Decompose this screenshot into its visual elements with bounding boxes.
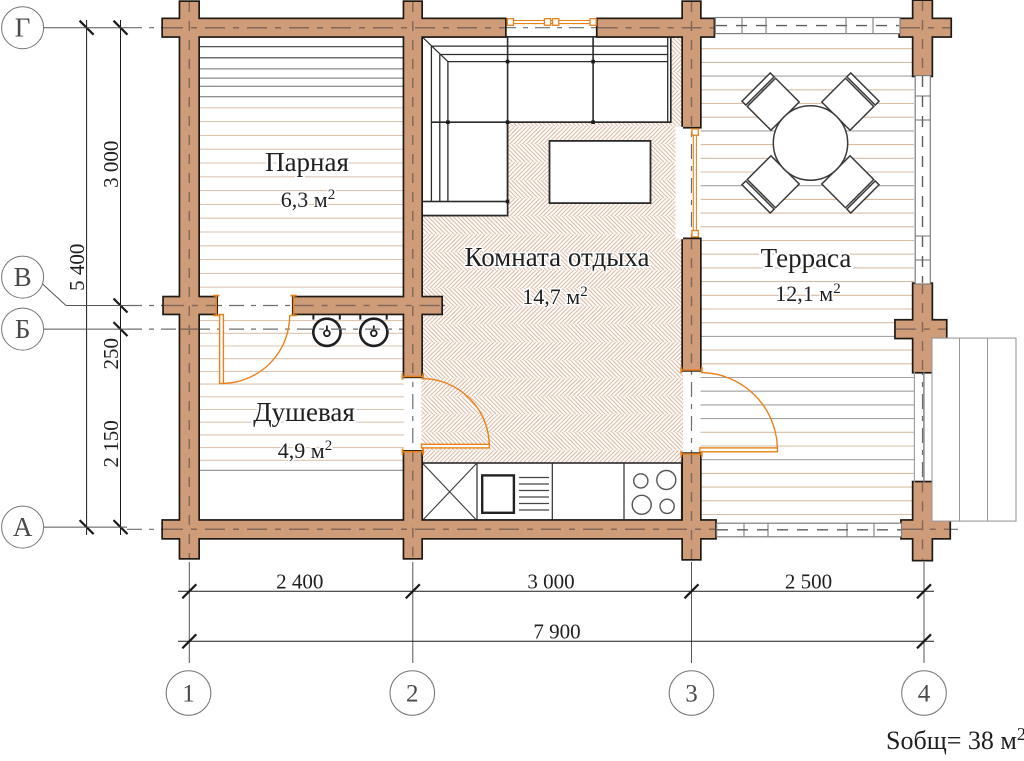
svg-text:Sобщ= 38 м2: Sобщ= 38 м2 [886, 724, 1024, 755]
svg-text:В: В [14, 262, 32, 292]
svg-text:12,1 м2: 12,1 м2 [775, 281, 840, 306]
svg-text:6,3 м2: 6,3 м2 [281, 187, 335, 212]
svg-text:250: 250 [99, 338, 123, 370]
svg-text:5 400: 5 400 [65, 244, 89, 291]
svg-text:2 400: 2 400 [276, 569, 323, 593]
svg-text:Парная: Парная [265, 147, 349, 177]
svg-text:4,9 м2: 4,9 м2 [278, 438, 332, 463]
svg-text:2 500: 2 500 [785, 569, 832, 593]
svg-text:3 000: 3 000 [99, 141, 123, 188]
svg-text:Терраса: Терраса [761, 243, 852, 273]
svg-text:А: А [13, 512, 33, 542]
svg-text:Комната отдыха: Комната отдыха [465, 242, 650, 272]
svg-text:2: 2 [406, 681, 419, 708]
svg-text:1: 1 [182, 681, 195, 708]
svg-text:Г: Г [15, 13, 31, 43]
svg-text:Б: Б [15, 314, 31, 344]
svg-text:4: 4 [918, 681, 931, 708]
svg-text:3: 3 [685, 681, 698, 708]
svg-text:7 900: 7 900 [533, 620, 580, 644]
svg-text:2 150: 2 150 [99, 420, 123, 467]
svg-text:14,7 м2: 14,7 м2 [522, 284, 587, 309]
svg-text:Душевая: Душевая [253, 397, 355, 427]
svg-text:3 000: 3 000 [527, 569, 574, 593]
